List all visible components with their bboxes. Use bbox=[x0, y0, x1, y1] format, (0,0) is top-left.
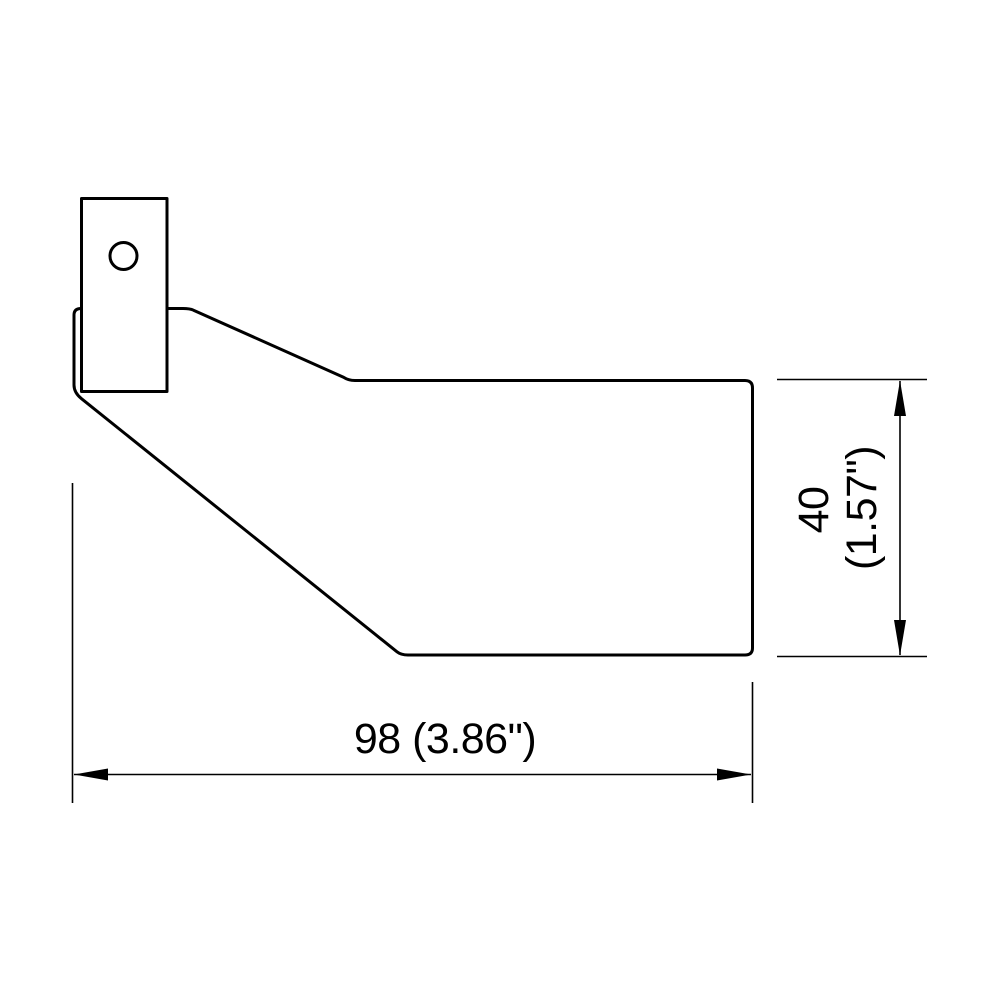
width-arrow-right-icon bbox=[717, 769, 751, 781]
height-dimension-inches: (1.57") bbox=[838, 446, 886, 570]
height-dimension: 40 (1.57") bbox=[777, 380, 927, 657]
width-dimension-label: 98 (3.86") bbox=[354, 715, 536, 763]
width-arrow-left-icon bbox=[74, 769, 108, 781]
mounting-bracket bbox=[82, 199, 168, 392]
dimension-drawing-canvas: 98 (3.86") 40 (1.57") bbox=[0, 0, 1000, 1000]
bolt-hole bbox=[110, 243, 137, 270]
technical-drawing-page: 98 (3.86") 40 (1.57") bbox=[0, 0, 1000, 1000]
height-arrow-down-icon bbox=[894, 620, 906, 656]
height-arrow-up-icon bbox=[894, 381, 906, 417]
height-dimension-value: 40 bbox=[790, 487, 838, 534]
part-body-outline bbox=[74, 309, 753, 656]
